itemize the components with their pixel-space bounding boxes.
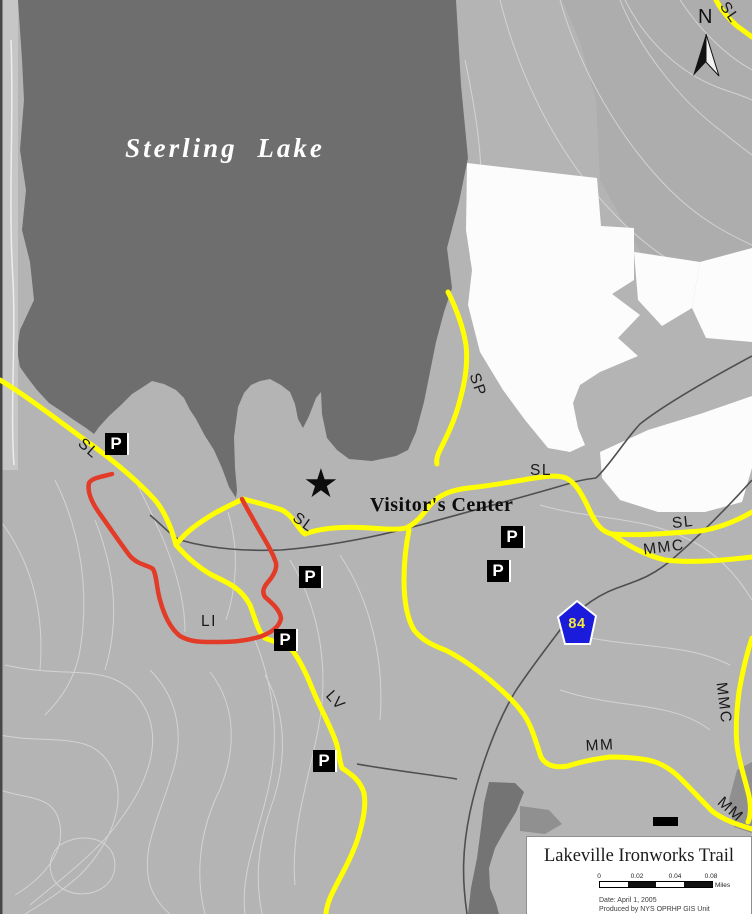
parking-icon: P — [487, 560, 511, 582]
structure-icon — [653, 817, 678, 826]
map-edge-strip — [0, 0, 18, 470]
trail-label-sl-3: SL — [530, 462, 552, 480]
parking-icon: P — [299, 566, 323, 588]
parking-icon: P — [105, 433, 129, 455]
parking-icon: P — [501, 526, 525, 548]
map-title: Lakeville Ironworks Trail — [527, 846, 751, 867]
legend-box: Lakeville Ironworks Trail 0 0.02 0.04 0.… — [526, 836, 752, 914]
lake-label: Sterling Lake — [95, 133, 355, 164]
visitor-center-star-icon: ★ — [303, 464, 339, 504]
scale-bar-segments — [599, 881, 713, 888]
scale-tick: 0 — [597, 873, 601, 880]
trail-label-sl-4: SL — [671, 513, 695, 533]
parking-icon: P — [313, 750, 337, 772]
scale-tick: 0.02 — [631, 873, 644, 880]
scale-tick: 0.08 — [705, 873, 718, 880]
scale-bar: 0 0.02 0.04 0.08 Miles — [599, 873, 729, 889]
scale-unit: Miles — [715, 882, 730, 889]
trail-label-mm-1: MM — [585, 736, 615, 755]
north-label: N — [698, 6, 712, 29]
visitor-center-label: Visitor's Center — [370, 494, 513, 517]
route-shield-number: 84 — [568, 616, 585, 632]
map-credits: Date: April 1, 2005 Produced by NYS OPRH… — [599, 896, 751, 914]
scale-ticks: 0 0.02 0.04 0.08 — [599, 873, 729, 881]
scale-tick: 0.04 — [669, 873, 682, 880]
left-border — [0, 0, 3, 914]
trail-map: Sterling Lake ★ Visitor's Center N SL SL… — [0, 0, 752, 914]
credit-line: Produced by NYS OPRHP GIS Unit — [599, 905, 751, 914]
trail-label-li: LI — [201, 613, 217, 631]
parking-icon: P — [274, 629, 298, 651]
date-line: Date: April 1, 2005 — [599, 896, 751, 905]
